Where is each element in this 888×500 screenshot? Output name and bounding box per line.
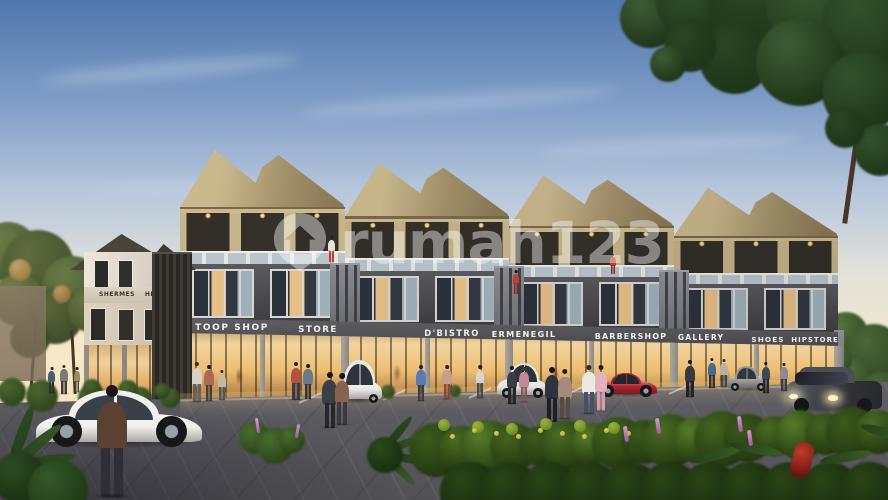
hedge-highlight	[574, 420, 586, 432]
hedge-highlight	[608, 422, 620, 434]
yellow-flower	[516, 434, 521, 439]
foreground-landscaping	[0, 0, 888, 500]
yellow-flower	[604, 428, 609, 433]
yellow-flower	[450, 434, 455, 439]
yellow-flower	[582, 434, 587, 439]
yellow-flower	[494, 431, 499, 436]
yellow-flower	[538, 428, 543, 433]
render-canvas: TOOP SHOPSTORED'BISTROERMENEGILBARBERSHO…	[0, 0, 888, 500]
hedge-highlight	[506, 423, 518, 435]
bush	[367, 437, 403, 473]
bush	[279, 427, 305, 453]
yellow-flower	[560, 431, 565, 436]
hedge-highlight	[438, 419, 450, 431]
yellow-flower	[472, 428, 477, 433]
